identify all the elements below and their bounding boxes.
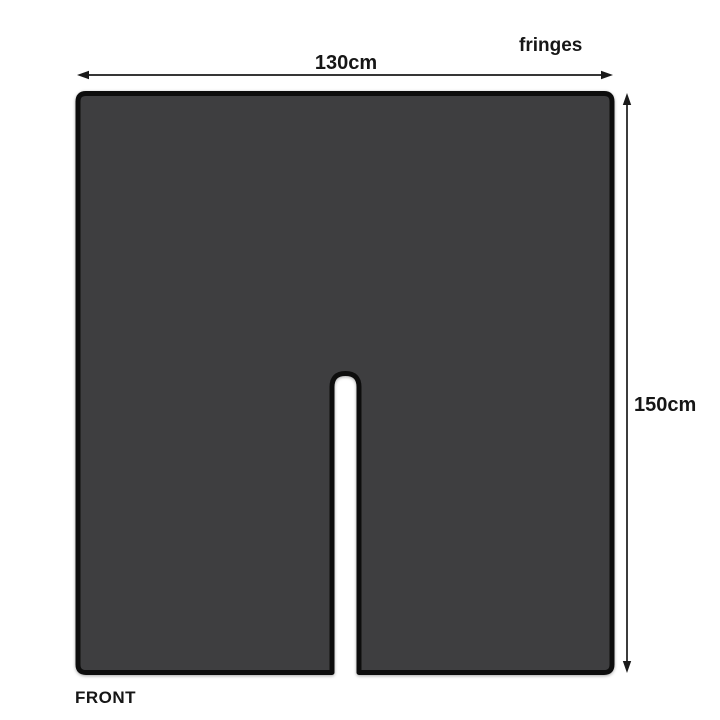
height-arrowhead-bottom (623, 661, 631, 673)
height-dimension-label: 150cm (634, 395, 696, 415)
height-arrowhead-top (623, 93, 631, 105)
fringes-label: fringes (519, 36, 582, 55)
width-dimension-label: 130cm (80, 53, 612, 73)
front-label: FRONT (75, 689, 136, 706)
diagram-canvas: 130cm fringes 150cm FRONT (0, 0, 720, 720)
garment-diagram (0, 0, 720, 720)
panel-shape (78, 94, 612, 673)
